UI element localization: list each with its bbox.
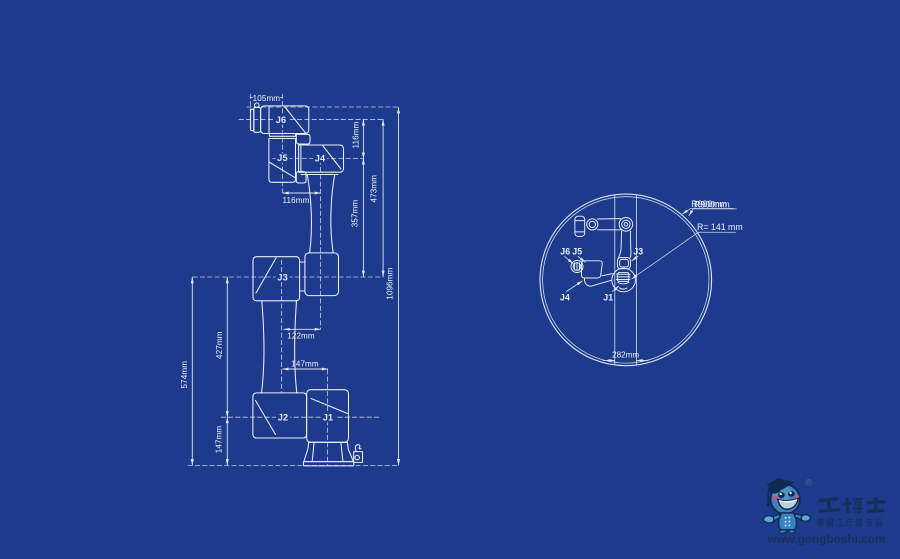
svg-text:J6: J6 (276, 115, 287, 125)
svg-text:J6: J6 (560, 247, 570, 257)
svg-text:J5: J5 (277, 153, 288, 163)
svg-text:J5: J5 (572, 247, 582, 257)
svg-text:J4: J4 (560, 292, 570, 302)
svg-text:J2: J2 (278, 413, 289, 423)
svg-text:427mm: 427mm (215, 331, 224, 359)
svg-text:www.gongboshi.com: www.gongboshi.com (766, 532, 885, 546)
svg-text:J4: J4 (315, 154, 326, 164)
svg-text:R= 141 mm: R= 141 mm (697, 222, 743, 232)
svg-text:574mm: 574mm (180, 361, 189, 389)
svg-text:116mm: 116mm (352, 121, 361, 148)
svg-text:J1: J1 (603, 292, 613, 302)
svg-text:J1: J1 (323, 413, 334, 423)
svg-text:J3: J3 (277, 272, 288, 282)
svg-text:473mm: 473mm (370, 175, 379, 203)
svg-text:122mm: 122mm (287, 332, 315, 341)
svg-text:282mm: 282mm (612, 351, 639, 360)
svg-text:J3: J3 (633, 247, 643, 257)
svg-text:105mm: 105mm (253, 94, 281, 103)
svg-text:R900mm: R900mm (694, 199, 730, 209)
svg-text:357mm: 357mm (351, 200, 360, 228)
svg-text:1096mm: 1096mm (386, 267, 395, 299)
svg-text:147mm: 147mm (215, 426, 224, 454)
svg-text:116mm: 116mm (283, 196, 310, 205)
